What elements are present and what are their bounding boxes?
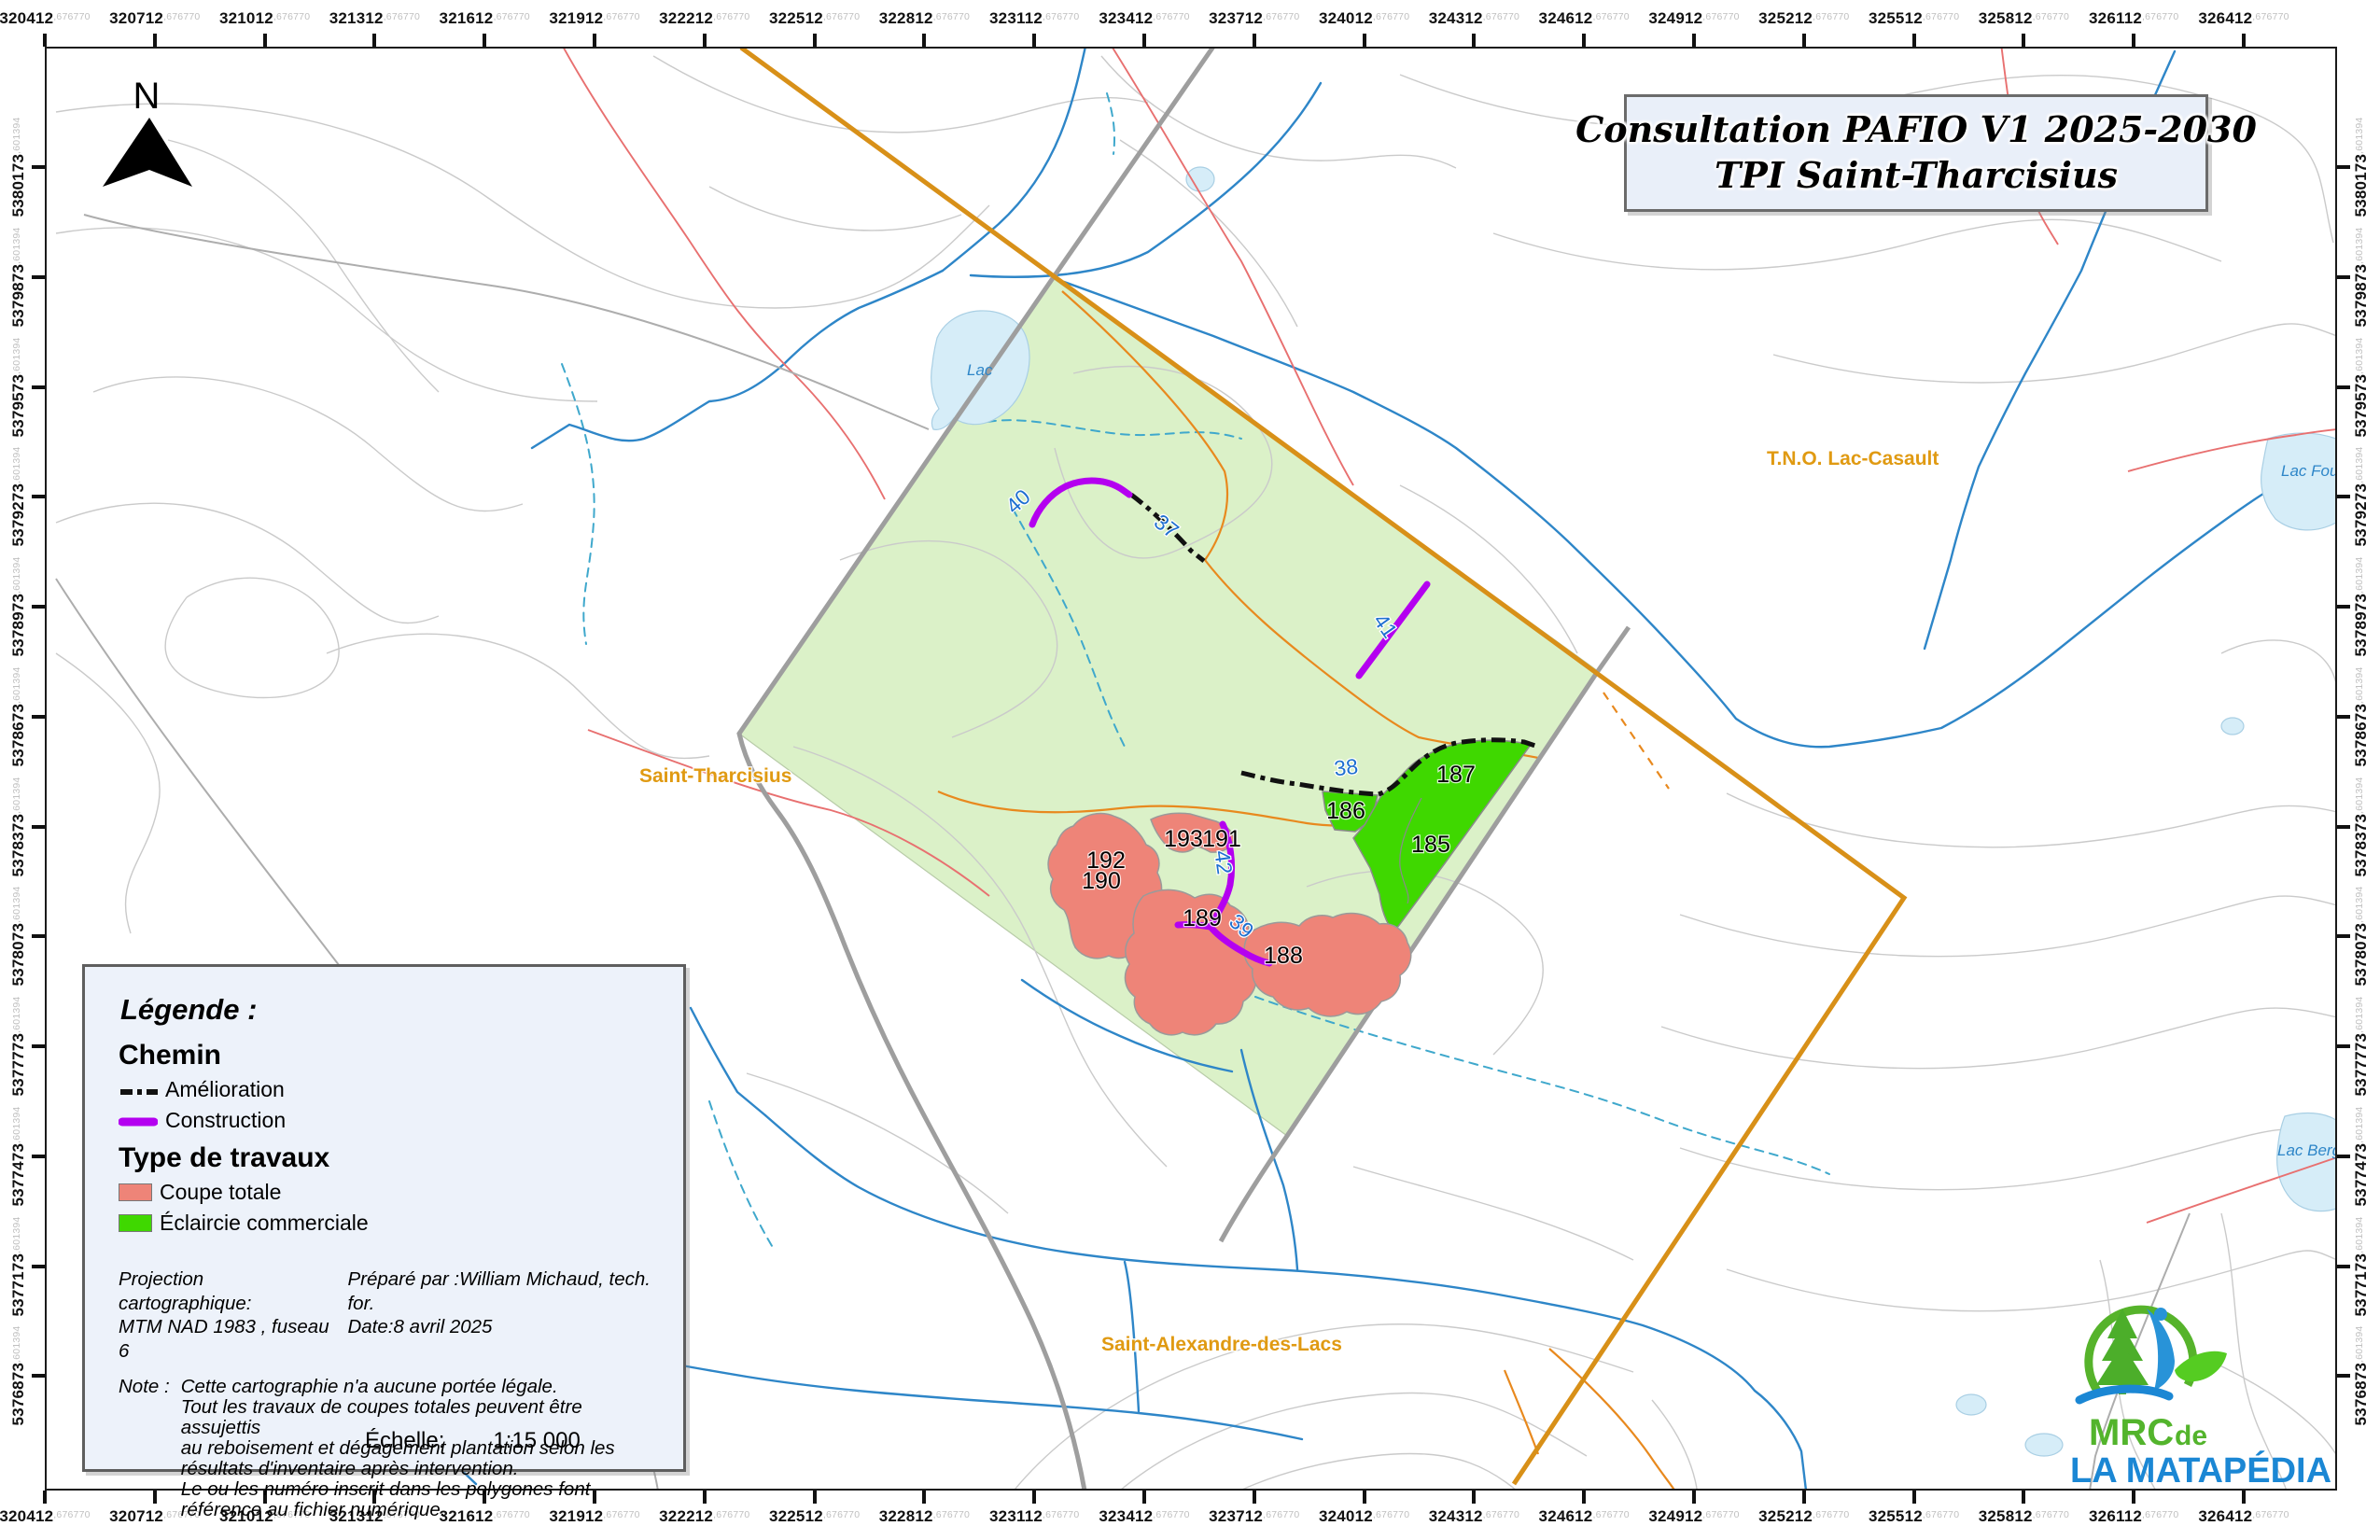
north-label: N [133,76,161,117]
scale-row: Échelle: 1:15 000 [365,1428,581,1454]
axis-tick [2337,715,2350,719]
x-axis-label: 325812,676770 [1979,9,2069,28]
label-tno-lac-casault: T.N.O. Lac-Casault [1767,448,1939,469]
y-axis-label: 5378373,601394 [9,777,28,876]
x-axis-label-bottom: 322512,676770 [769,1507,860,1526]
axis-tick [1142,34,1146,47]
scale-label: Échelle: [365,1428,444,1454]
axis-tick [1142,1491,1146,1504]
label-saint-alexandre: Saint-Alexandre-des-Lacs [1101,1334,1342,1355]
axis-tick [2337,1044,2350,1048]
axis-tick [2337,275,2350,279]
x-axis-label-bottom: 326412,676770 [2198,1507,2289,1526]
label-road-38: 38 [1333,754,1359,781]
note-line: Le ou les numéro inscrit dans les polygo… [181,1479,665,1500]
legend-heading: Légende : [120,993,665,1027]
axis-tick [32,495,45,498]
axis-tick [1032,34,1036,47]
axis-tick [32,275,45,279]
y-axis-label-right: 5378373,601394 [2352,777,2371,876]
axis-tick [1253,34,1256,47]
small-pond [1186,167,1214,191]
x-axis-label-bottom: 320412,676770 [0,1507,91,1526]
small-pond [2025,1434,2063,1456]
x-axis-label: 324012,676770 [1319,9,1409,28]
x-axis-label: 320712,676770 [109,9,200,28]
x-axis-label-bottom: 326112,676770 [2089,1507,2178,1526]
axis-tick [1363,1491,1366,1504]
axis-tick [593,34,596,47]
projection-label: Projection cartographique: [119,1267,332,1315]
axis-tick [1912,1491,1916,1504]
legend-item-label: Amélioration [165,1077,285,1102]
map-title-line1: Consultation PAFIO V1 2025-2030 [1575,107,2257,153]
y-axis-label-right: 5377473,601394 [2352,1106,2371,1206]
x-axis-label: 324612,676770 [1539,9,1630,28]
x-axis-label: 322812,676770 [879,9,970,28]
axis-tick [32,605,45,609]
x-axis-label-bottom: 322212,676770 [659,1507,749,1526]
projection-block: Projection cartographique: MTM NAD 1983 … [119,1267,332,1364]
scale-value: 1:15 000 [493,1428,580,1454]
axis-tick [2337,934,2350,938]
y-axis-label: 5377173,601394 [9,1216,28,1316]
axis-tick [703,34,707,47]
y-axis-label: 5378673,601394 [9,666,28,766]
x-axis-label: 325512,676770 [1869,9,1959,28]
legend-item-label: Coupe totale [160,1180,281,1205]
small-pond [1956,1394,1986,1415]
label-189: 189 [1183,905,1222,931]
axis-tick [2337,1155,2350,1158]
y-axis-label: 5377773,601394 [9,997,28,1097]
y-axis-label: 5377473,601394 [9,1106,28,1206]
axis-tick [1692,1491,1696,1504]
axis-tick [32,1155,45,1158]
x-axis-label: 324312,676770 [1429,9,1519,28]
axis-tick [1582,1491,1586,1504]
axis-tick [32,715,45,719]
pink-swatch-icon [119,1183,152,1201]
legend-item-label: Éclaircie commerciale [160,1211,369,1236]
map-date: Date:8 avril 2025 [347,1315,665,1339]
x-axis-label: 320412,676770 [0,9,91,28]
axis-tick [483,34,486,47]
axis-tick [2337,385,2350,389]
legend-item-eclaircie: Éclaircie commerciale [119,1211,665,1236]
author-block: Préparé par :William Michaud, tech. for.… [347,1267,665,1364]
legend-item-construction: Construction [119,1108,665,1133]
x-axis-label: 323412,676770 [1099,9,1189,28]
axis-tick [813,1491,817,1504]
x-axis-label: 321312,676770 [329,9,420,28]
axis-tick [1802,34,1806,47]
legend-item-coupe-totale: Coupe totale [119,1180,665,1205]
axis-tick [1472,1491,1476,1504]
note-label: Note : [119,1377,170,1521]
axis-tick [1253,1491,1256,1504]
label-186: 186 [1326,798,1365,824]
axis-tick [703,1491,707,1504]
legend-item-amelioration: Amélioration [119,1077,665,1102]
x-axis-label: 326112,676770 [2089,9,2178,28]
axis-tick [372,34,376,47]
axis-tick [2337,825,2350,829]
axis-tick [1582,34,1586,47]
map-title-line2: TPI Saint-Tharcisius [1715,153,2118,199]
map-metadata: Projection cartographique: MTM NAD 1983 … [119,1267,665,1364]
axis-tick [32,1265,45,1268]
note-line: Cette cartographie n'a aucune portée lég… [181,1377,665,1397]
label-saint-tharcisius: Saint-Tharcisius [639,765,791,787]
label-191: 191 [1202,826,1241,852]
axis-tick [32,934,45,938]
y-axis-label: 5378973,601394 [9,557,28,657]
small-pond [2221,718,2244,735]
note-line: référence au fichier numérique. [181,1500,665,1520]
x-axis-label-bottom: 324312,676770 [1429,1507,1519,1526]
x-axis-label-bottom: 324612,676770 [1539,1507,1630,1526]
x-axis-label: 322212,676770 [659,9,749,28]
x-axis-label: 324912,676770 [1648,9,1739,28]
y-axis-label: 5378073,601394 [9,887,28,987]
x-axis-label: 323712,676770 [1209,9,1299,28]
green-swatch-icon [119,1214,152,1232]
x-axis-label-bottom: 325512,676770 [1869,1507,1959,1526]
y-axis-label-right: 5379873,601394 [2352,227,2371,327]
logo-de-text: de [2175,1421,2207,1451]
x-axis-label: 323112,676770 [989,9,1079,28]
x-axis-label-bottom: 323112,676770 [989,1507,1079,1526]
logo-name-text: LA MATAPÉDIA [2070,1449,2331,1491]
axis-tick [2242,34,2246,47]
axis-tick [2337,1374,2350,1378]
axis-tick [2022,1491,2025,1504]
x-axis-label-bottom: 325812,676770 [1979,1507,2069,1526]
x-axis-label: 321912,676770 [549,9,639,28]
y-axis-label-right: 5378973,601394 [2352,557,2371,657]
x-axis-label-bottom: 324912,676770 [1648,1507,1739,1526]
label-187: 187 [1436,762,1476,788]
axis-tick [43,34,47,47]
axis-tick [32,825,45,829]
y-axis-label-right: 5377773,601394 [2352,997,2371,1097]
prepared-by: Préparé par :William Michaud, tech. for. [347,1267,665,1315]
axis-tick [922,1491,926,1504]
axis-tick [2337,495,2350,498]
axis-tick [2132,34,2135,47]
y-axis-label-right: 5379573,601394 [2352,337,2371,437]
axis-tick [2242,1491,2246,1504]
y-axis-label: 5380173,601394 [9,118,28,217]
axis-tick [1912,34,1916,47]
title-box: Consultation PAFIO V1 2025-2030 TPI Sain… [1624,94,2208,212]
label-road-42: 42 [1210,848,1237,875]
axis-tick [263,34,267,47]
label-lac: Lac [967,361,993,379]
x-axis-label-bottom: 324012,676770 [1319,1507,1409,1526]
legend-item-label: Construction [165,1108,286,1133]
axis-tick [32,385,45,389]
axis-tick [1363,34,1366,47]
axis-tick [1472,34,1476,47]
x-axis-label-bottom: 323412,676770 [1099,1507,1189,1526]
legend-panel: Légende : Chemin Amélioration Constructi… [82,964,686,1472]
x-axis-label-bottom: 322812,676770 [879,1507,970,1526]
label-190: 190 [1082,868,1121,894]
y-axis-label: 5379573,601394 [9,337,28,437]
x-axis-label: 322512,676770 [769,9,860,28]
x-axis-label: 326412,676770 [2198,9,2289,28]
x-axis-label: 321012,676770 [219,9,310,28]
y-axis-label: 5379273,601394 [9,447,28,547]
axis-tick [32,1374,45,1378]
purple-line-icon [119,1108,158,1133]
y-axis-label-right: 5380173,601394 [2352,118,2371,217]
legend-travaux-heading: Type de travaux [119,1142,665,1174]
axis-tick [2337,165,2350,169]
label-193: 193 [1164,826,1203,852]
label-188: 188 [1264,943,1303,969]
x-axis-label: 321612,676770 [440,9,530,28]
axis-tick [2132,1491,2135,1504]
axis-tick [1692,34,1696,47]
axis-tick [153,34,157,47]
axis-tick [32,165,45,169]
y-axis-label-right: 5378673,601394 [2352,666,2371,766]
axis-tick [2337,605,2350,609]
y-axis-label-right: 5378073,601394 [2352,887,2371,987]
axis-tick [2337,1265,2350,1268]
axis-tick [813,34,817,47]
y-axis-label-right: 5377173,601394 [2352,1216,2371,1316]
axis-tick [43,1491,47,1504]
label-185: 185 [1411,832,1450,858]
axis-tick [2022,34,2025,47]
y-axis-label-right: 5379273,601394 [2352,447,2371,547]
x-axis-label: 325212,676770 [1758,9,1849,28]
note-line: résultats d'inventaire après interventio… [181,1459,665,1479]
x-axis-label-bottom: 325212,676770 [1758,1507,1849,1526]
y-axis-label: 5376873,601394 [9,1326,28,1426]
projection-value: MTM NAD 1983 , fuseau 6 [119,1315,332,1363]
map-document: 187 186 185 193 191 192 190 189 188 40 3… [0,0,2380,1540]
axis-tick [922,34,926,47]
legend-chemin-heading: Chemin [119,1040,665,1071]
axis-tick [1802,1491,1806,1504]
axis-tick [1032,1491,1036,1504]
dashdot-line-icon [119,1077,158,1102]
x-axis-label-bottom: 323712,676770 [1209,1507,1299,1526]
logo-mrc-text: MRC [2089,1412,2174,1453]
axis-tick [32,1044,45,1048]
y-axis-label-right: 5376873,601394 [2352,1326,2371,1426]
lake-fournier [2261,433,2336,530]
y-axis-label: 5379873,601394 [9,227,28,327]
